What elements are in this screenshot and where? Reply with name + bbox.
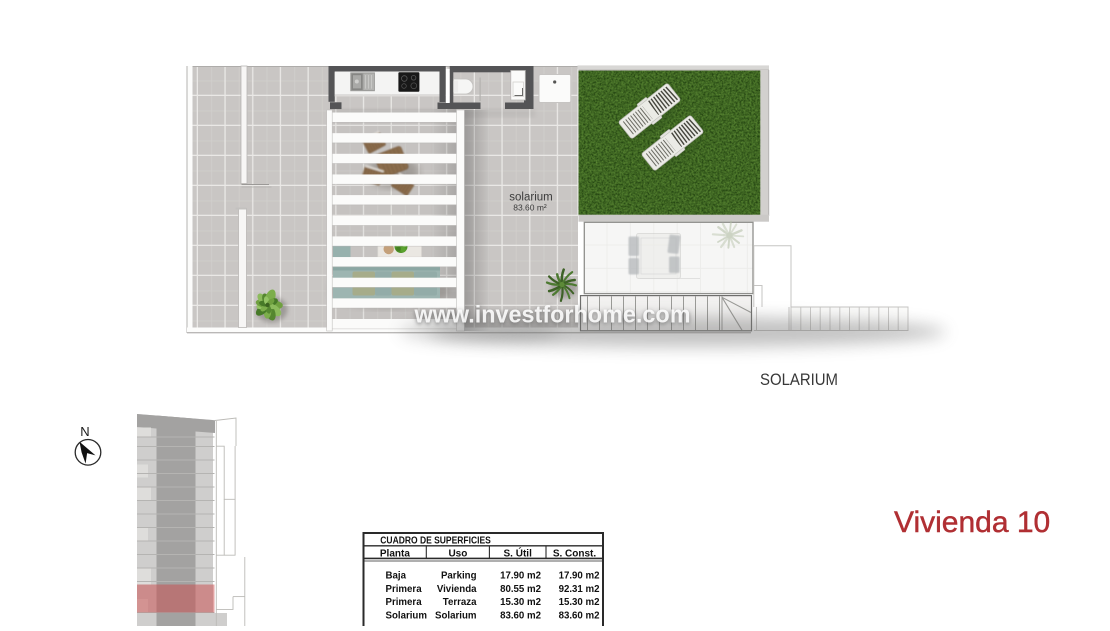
svg-text:www.investforhome.com: www.investforhome.com [414, 302, 691, 329]
svg-text:N: N [80, 424, 89, 439]
svg-text:15.30 m2: 15.30 m2 [559, 597, 600, 608]
svg-text:S. Const.: S. Const. [553, 549, 597, 560]
svg-text:Uso: Uso [448, 549, 467, 560]
svg-text:Parking: Parking [441, 571, 477, 582]
svg-text:Baja: Baja [386, 571, 407, 582]
svg-text:15.30 m2: 15.30 m2 [500, 597, 541, 608]
svg-text:17.90 m2: 17.90 m2 [500, 571, 541, 582]
svg-text:80.55 m2: 80.55 m2 [500, 584, 541, 595]
svg-text:Primera: Primera [386, 597, 423, 608]
svg-text:92.31 m2: 92.31 m2 [559, 584, 600, 595]
svg-text:S. Útil: S. Útil [504, 547, 533, 560]
svg-text:Primera: Primera [386, 584, 423, 595]
svg-text:Solarium: Solarium [386, 610, 428, 621]
svg-text:SOLARIUM: SOLARIUM [760, 370, 838, 389]
svg-text:Solarium: Solarium [435, 610, 477, 621]
svg-text:Vivienda: Vivienda [437, 584, 477, 595]
svg-text:CUADRO DE SUPERFICIES: CUADRO DE SUPERFICIES [380, 536, 491, 547]
svg-text:Vivienda 10: Vivienda 10 [894, 506, 1050, 539]
svg-text:Terraza: Terraza [443, 597, 477, 608]
svg-text:83.60 m2: 83.60 m2 [500, 610, 541, 621]
svg-text:17.90 m2: 17.90 m2 [559, 571, 600, 582]
svg-text:83.60 m²: 83.60 m² [513, 203, 547, 213]
svg-text:83.60 m2: 83.60 m2 [559, 610, 600, 621]
svg-text:Planta: Planta [380, 549, 410, 560]
